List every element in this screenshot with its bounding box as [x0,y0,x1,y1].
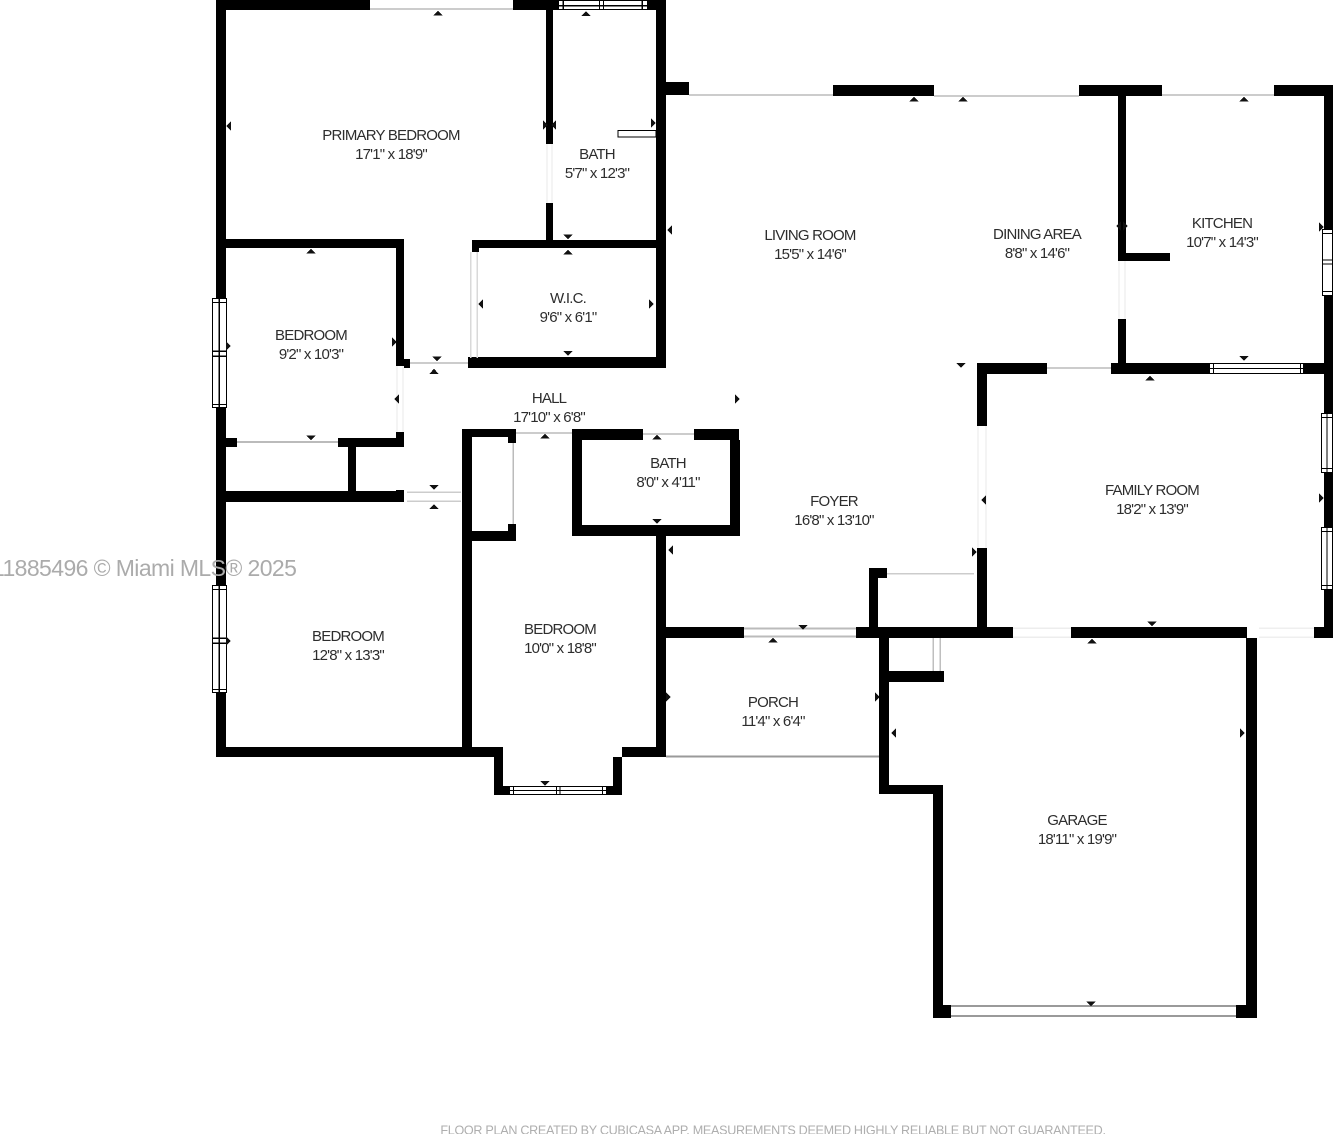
svg-text:FAMILY ROOM: FAMILY ROOM [1105,482,1199,499]
svg-text:10'7" x 14'3": 10'7" x 14'3" [1186,234,1258,251]
svg-text:FOYER: FOYER [810,493,859,510]
svg-text:17'1" x 18'9": 17'1" x 18'9" [355,146,427,163]
svg-text:16'8" x 13'10": 16'8" x 13'10" [794,512,874,529]
svg-text:BEDROOM: BEDROOM [275,327,347,344]
svg-text:BEDROOM: BEDROOM [312,628,384,645]
svg-text:18'2" x 13'9": 18'2" x 13'9" [1116,501,1188,518]
svg-text:FLOOR PLAN CREATED BY CUBICASA: FLOOR PLAN CREATED BY CUBICASA APP. MEAS… [440,1124,1105,1134]
svg-text:PRIMARY BEDROOM: PRIMARY BEDROOM [322,127,460,144]
svg-text:12'8" x 13'3": 12'8" x 13'3" [312,647,384,664]
svg-text:BATH: BATH [650,455,686,472]
svg-text:11'4" x 6'4": 11'4" x 6'4" [741,713,805,730]
svg-text:DINING AREA: DINING AREA [993,226,1082,243]
svg-text:10'0" x 18'8": 10'0" x 18'8" [524,640,596,657]
svg-text:KITCHEN: KITCHEN [1192,215,1252,232]
svg-text:W.I.C.: W.I.C. [550,290,586,307]
svg-text:GARAGE: GARAGE [1047,812,1107,829]
svg-text:8'0" x 4'11": 8'0" x 4'11" [636,474,700,491]
svg-text:17'10" x 6'8": 17'10" x 6'8" [513,409,585,426]
svg-text:9'2" x 10'3": 9'2" x 10'3" [279,346,344,363]
svg-text:8'8" x 14'6": 8'8" x 14'6" [1005,245,1070,262]
svg-text:15'5" x 14'6": 15'5" x 14'6" [774,246,846,263]
svg-text:LIVING ROOM: LIVING ROOM [764,227,856,244]
svg-text:PORCH: PORCH [748,694,798,711]
svg-text:HALL: HALL [532,390,567,407]
svg-text:18'11" x 19'9": 18'11" x 19'9" [1038,831,1117,848]
svg-text:11885496 © Miami MLS® 2025: 11885496 © Miami MLS® 2025 [0,555,296,581]
svg-text:BEDROOM: BEDROOM [524,621,596,638]
svg-text:5'7" x 12'3": 5'7" x 12'3" [565,165,630,182]
svg-text:9'6" x 6'1": 9'6" x 6'1" [540,309,597,326]
svg-text:BATH: BATH [579,146,615,163]
